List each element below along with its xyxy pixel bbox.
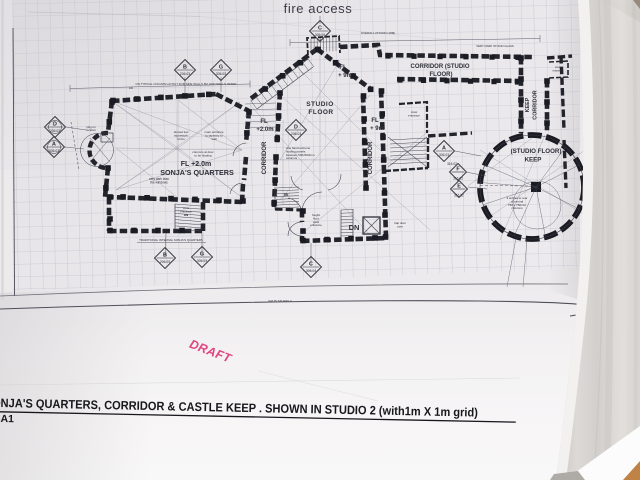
svg-text:entrance: entrance — [408, 113, 420, 117]
svg-text:306.03: 306.03 — [49, 149, 59, 153]
svg-text:CORRIDOR: CORRIDOR — [262, 141, 268, 174]
svg-text:ON TYPICAL COLUMN LAYOUT FOR S: ON TYPICAL COLUMN LAYOUT FOR SIDE WALLS … — [135, 82, 236, 86]
svg-text:FL: FL — [339, 65, 347, 71]
svg-text:3A1: 3A1 — [0, 413, 14, 425]
svg-text:206.03: 206.03 — [160, 260, 170, 264]
svg-text:C: C — [309, 261, 313, 267]
svg-text:FLOOR): FLOOR) — [430, 72, 453, 78]
svg-text:fire access: fire access — [284, 1, 353, 16]
svg-text:(STUDIO FLOOR): (STUDIO FLOOR) — [511, 148, 562, 155]
svg-text:+ 9m: + 9m — [370, 126, 384, 132]
svg-text:DN: DN — [284, 193, 289, 197]
svg-text:306.03: 306.03 — [216, 72, 226, 76]
svg-text:CORRIDOR: CORRIDOR — [533, 90, 539, 119]
svg-text:SONJA'S QUARTERS: SONJA'S QUARTERS — [160, 168, 234, 177]
svg-text:306.03: 306.03 — [439, 153, 449, 157]
svg-text:D: D — [294, 124, 298, 130]
svg-text:FLOOR: FLOOR — [308, 109, 333, 116]
svg-text:wall: wall — [211, 137, 217, 141]
svg-text:316.02: 316.02 — [454, 194, 464, 198]
svg-text:206.03: 206.03 — [50, 129, 60, 133]
svg-text:306.04: 306.04 — [306, 269, 316, 273]
svg-text:206.03: 206.03 — [180, 72, 190, 76]
svg-text:64175 STUDIO 2: 64175 STUDIO 2 — [268, 299, 291, 303]
svg-text:location: location — [86, 128, 96, 132]
svg-text:E: E — [457, 183, 461, 189]
svg-text:C: C — [318, 25, 322, 31]
svg-text:FL +2.0m: FL +2.0m — [181, 161, 211, 168]
svg-text:206.03: 206.03 — [291, 132, 301, 136]
svg-text:OVERALL (STUDIO 28M): OVERALL (STUDIO 28M) — [361, 31, 396, 35]
svg-text:DN: DN — [184, 213, 188, 217]
svg-text:100: 100 — [129, 87, 134, 90]
svg-text:D: D — [53, 121, 57, 127]
svg-text:entrance: entrance — [553, 68, 564, 72]
svg-text:G: G — [200, 251, 204, 257]
svg-text:CORRIDOR: CORRIDOR — [368, 141, 374, 174]
svg-text:forms: forms — [177, 137, 185, 141]
svg-text:TRADITIONAL INTERNAL SONJA'S Q: TRADITIONAL INTERNAL SONJA'S QUARTERS — [139, 238, 203, 242]
svg-text:columns: columns — [286, 156, 298, 160]
svg-text:DN: DN — [349, 223, 360, 232]
svg-text:over: over — [397, 224, 403, 228]
svg-text:KEEP: KEEP — [525, 157, 542, 164]
svg-text:316.02: 316.02 — [453, 177, 463, 181]
svg-text:306.04: 306.04 — [315, 33, 325, 37]
svg-text:CORRIDOR (STUDIO: CORRIDOR (STUDIO — [411, 64, 470, 70]
svg-text:+ 9m: + 9m — [338, 73, 352, 79]
svg-text:FL: FL — [371, 118, 379, 124]
svg-text:B: B — [183, 64, 187, 70]
svg-text:KEEP: KEEP — [525, 97, 531, 112]
svg-text:to be floating: to be floating — [194, 153, 212, 157]
svg-text:A: A — [52, 141, 56, 147]
svg-text:G: G — [219, 64, 223, 70]
svg-text:A: A — [442, 145, 446, 151]
svg-text:entrance: entrance — [310, 223, 322, 227]
svg-text:VERY DARK STUDIO GLASS: VERY DARK STUDIO GLASS — [476, 44, 514, 48]
svg-text:+2.0m: +2.0m — [256, 127, 273, 133]
svg-text:316.02: 316.02 — [447, 162, 457, 166]
svg-text:B: B — [163, 252, 167, 258]
svg-text:the windows: the windows — [150, 181, 168, 185]
svg-text:306.03: 306.03 — [197, 259, 207, 263]
svg-text:columns: columns — [511, 206, 523, 210]
svg-text:FL: FL — [260, 119, 268, 125]
svg-text:STUDIO: STUDIO — [306, 101, 334, 108]
